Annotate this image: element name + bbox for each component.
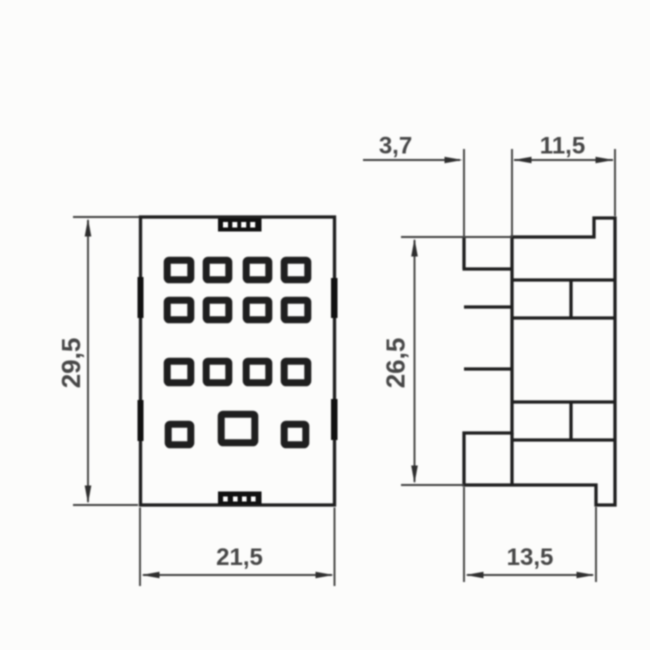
svg-text:11,5: 11,5 [540,133,585,160]
svg-text:26,5: 26,5 [381,338,411,389]
svg-text:13,5: 13,5 [507,544,554,571]
svg-text:21,5: 21,5 [216,544,263,571]
svg-text:3,7: 3,7 [379,133,412,160]
svg-text:29,5: 29,5 [56,338,86,389]
